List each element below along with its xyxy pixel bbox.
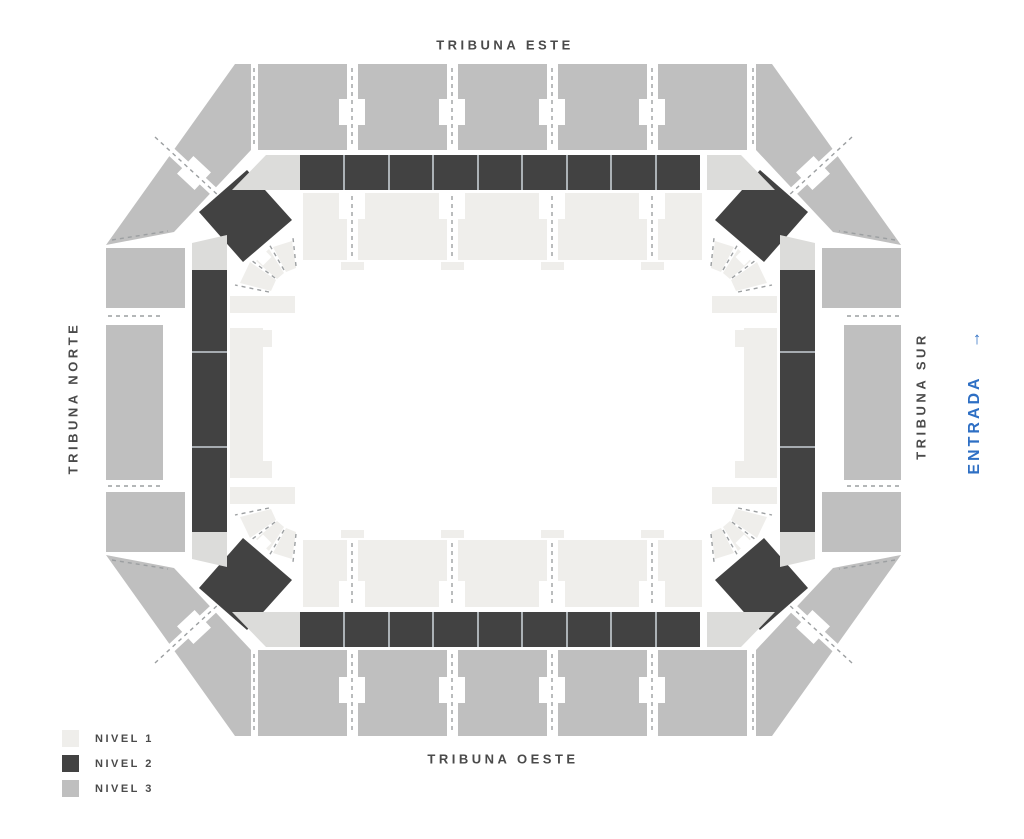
legend-item: NIVEL 1 [62,730,154,747]
legend-label: NIVEL 3 [95,783,154,795]
nivel2-connector[interactable] [232,155,300,190]
nivel3-section[interactable] [822,248,901,308]
nivel2-connector[interactable] [192,235,227,270]
entrada-label: ENTRADA [966,375,984,474]
nivel1-section[interactable] [558,193,647,260]
legend-swatch-nivel3 [62,780,79,797]
nivel3-section[interactable] [558,64,647,150]
nivel1-section[interactable] [358,193,447,260]
nivel1-section[interactable] [458,540,547,607]
tribuna-sur-label: TRIBUNA SUR [914,332,929,460]
nivel3-section[interactable] [658,650,747,736]
nivel3-section[interactable] [258,64,347,150]
nivel2-connector[interactable] [707,155,775,190]
legend-swatch-nivel2 [62,755,79,772]
nivel1-section[interactable] [230,328,263,478]
nivel2-section-row[interactable] [300,612,700,647]
nivel3-section[interactable] [106,325,163,480]
nivel1-section[interactable] [358,540,447,607]
nivel2-connector[interactable] [192,532,227,567]
legend-label: NIVEL 2 [95,758,154,770]
entrada-arrow-icon: ↑ [973,329,982,349]
legend-swatch-nivel1 [62,730,79,747]
nivel2-section-column[interactable] [192,270,227,532]
nivel1-section[interactable] [458,193,547,260]
nivel3-section[interactable] [844,325,901,480]
legend-item: NIVEL 2 [62,755,154,772]
nivel1-section[interactable] [744,328,777,478]
nivel1-section[interactable] [712,296,777,313]
nivel3-section[interactable] [106,248,185,308]
nivel2-connector[interactable] [780,235,815,270]
nivel2-section-row[interactable] [300,155,700,190]
nivel1-section[interactable] [558,540,647,607]
nivel3-section[interactable] [822,492,901,552]
nivel3-section[interactable] [358,650,447,736]
nivel1-tabs [263,262,744,538]
legend: NIVEL 1 NIVEL 2 NIVEL 3 [62,730,154,797]
nivel2-connector[interactable] [780,532,815,567]
nivel3-section[interactable] [658,64,747,150]
nivel1-section[interactable] [230,487,295,504]
nivel3-section[interactable] [458,650,547,736]
nivel1-section[interactable] [230,296,295,313]
nivel3-section[interactable] [558,650,647,736]
nivel3-section[interactable] [358,64,447,150]
nivel3-section[interactable] [106,492,185,552]
tribuna-norte-label: TRIBUNA NORTE [66,322,81,475]
legend-label: NIVEL 1 [95,733,154,745]
nivel1-section[interactable] [712,487,777,504]
tribuna-este-label: TRIBUNA ESTE [436,38,574,53]
nivel3-section[interactable] [458,64,547,150]
nivel3-section[interactable] [258,650,347,736]
nivel1-ring [230,193,777,607]
stadium-seating-map: TRIBUNA ESTE TRIBUNA OESTE TRIBUNA NORTE… [0,0,1024,839]
nivel2-section-column[interactable] [780,270,815,532]
tribuna-oeste-label: TRIBUNA OESTE [427,752,578,767]
arena-map [0,0,1024,839]
legend-item: NIVEL 3 [62,780,154,797]
